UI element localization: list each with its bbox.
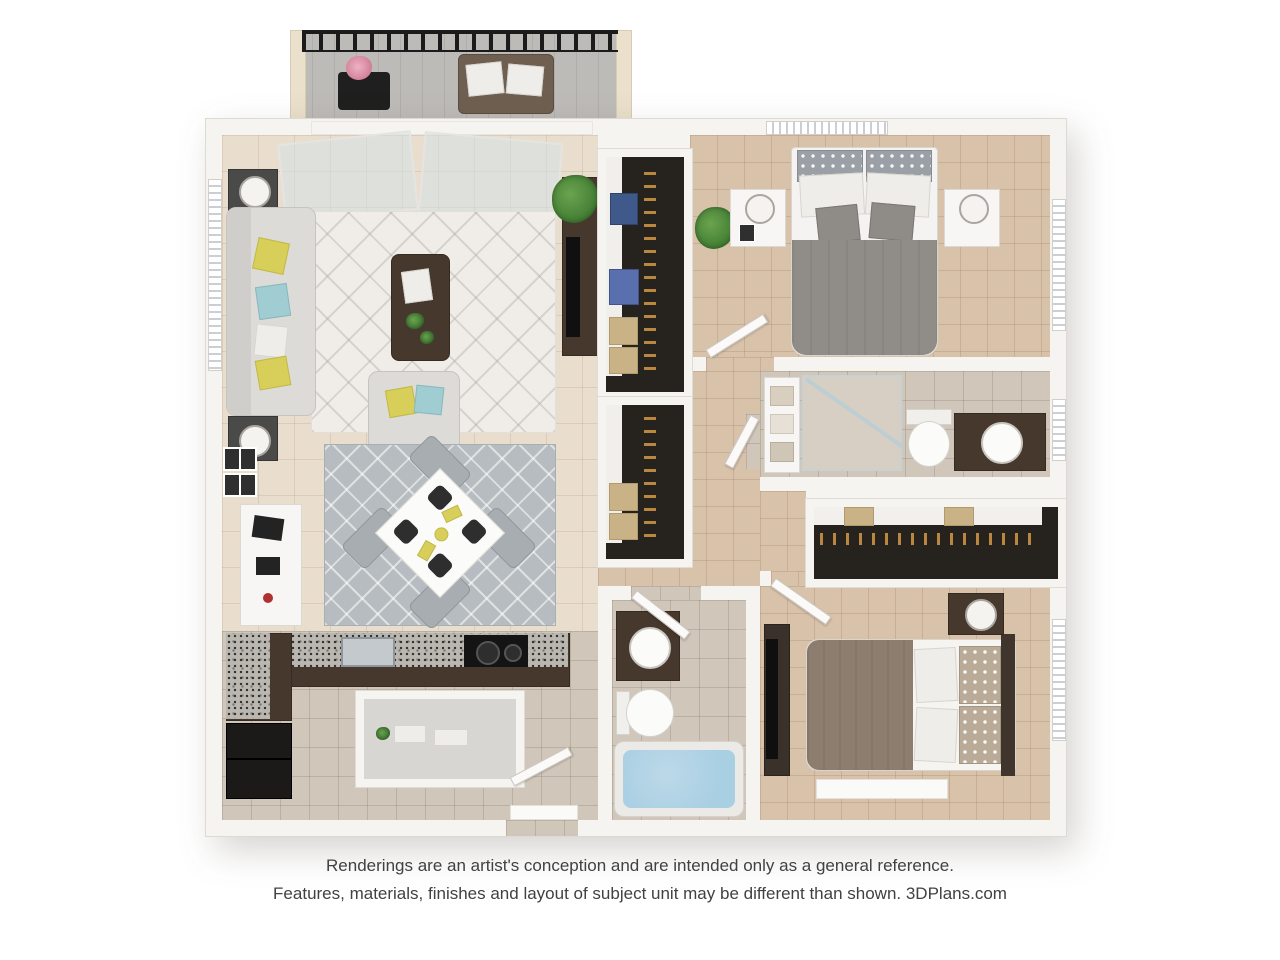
kitchen-countertop-left	[226, 633, 270, 719]
coffee-table-plant	[406, 313, 424, 329]
refrigerator	[226, 723, 292, 799]
towel	[770, 442, 794, 462]
bedroom-2-bed	[806, 639, 1016, 771]
refrigerator-divider	[227, 758, 291, 760]
folded-clothes-blue	[610, 193, 638, 225]
folded-clothes-blue	[609, 269, 639, 305]
bedroom-2-lamp	[965, 599, 997, 631]
wall-frame	[239, 473, 257, 497]
towel	[770, 386, 794, 406]
living-room-window	[208, 179, 222, 371]
closet-box	[609, 347, 638, 374]
toilet-bowl	[626, 689, 674, 737]
bedroom-2-rug	[816, 779, 948, 799]
hallway-floor-nook	[760, 491, 806, 571]
tv-screen	[566, 237, 580, 337]
bedroom-1-nightstand	[944, 189, 1000, 247]
bedroom-2-nightstand	[948, 593, 1004, 635]
bed-duvet	[792, 240, 937, 355]
closet-hanger-rod	[820, 533, 1036, 545]
bed-blanket	[807, 640, 913, 770]
closet-hanger-rod	[644, 165, 656, 370]
stove-burner	[476, 641, 500, 665]
pantry-closet	[356, 691, 524, 787]
sofa-back	[227, 208, 251, 415]
bathtub-water	[623, 750, 735, 808]
living-room-sofa	[226, 207, 316, 416]
sofa-pillow-teal	[255, 283, 291, 320]
balcony-railing	[302, 30, 618, 52]
sideboard-decor-red	[263, 593, 273, 603]
pantry-item	[394, 725, 426, 743]
dining-plate	[392, 517, 420, 545]
bedroom-1-top-window	[766, 121, 888, 135]
armchair-pillow-teal	[414, 385, 445, 416]
disclaimer-line-2: Features, materials, finishes and layout…	[0, 880, 1280, 908]
stove-burner	[504, 644, 522, 662]
accent-pillow-trellis	[959, 646, 1001, 704]
closet-hanger-rod	[644, 411, 656, 537]
dining-napkin	[441, 505, 462, 523]
bedroom-2-window	[1052, 619, 1066, 741]
bedroom-1-side-window	[1052, 199, 1066, 331]
front-door-opening	[506, 820, 578, 836]
bathroom-1-sink	[981, 422, 1023, 464]
bed-pillow	[914, 707, 959, 763]
sideboard	[240, 504, 302, 626]
kitchen-sink	[341, 637, 395, 667]
sofa-pillow-yellow	[255, 355, 292, 390]
bedroom-1-lamp	[745, 194, 775, 224]
balcony-sofa-cushion	[465, 61, 504, 97]
wall-frame	[239, 447, 257, 471]
closet-box	[844, 507, 874, 526]
accent-pillow-trellis	[959, 706, 1001, 764]
floor-lamp	[239, 176, 271, 208]
closet-box	[944, 507, 974, 526]
bathroom-2-sink	[629, 627, 671, 669]
dining-pitcher	[432, 525, 452, 545]
nightstand-frame	[739, 224, 755, 242]
floor-plan-canvas	[205, 30, 1065, 835]
pantry-item	[434, 729, 468, 746]
bathroom-1-vanity	[954, 413, 1046, 471]
balcony-post-right	[616, 30, 632, 120]
sideboard-decor	[256, 557, 280, 575]
coffee-table	[391, 254, 450, 361]
walk-in-closet-2	[598, 397, 692, 567]
toilet-bowl	[908, 421, 950, 467]
linen-closet	[764, 377, 800, 473]
disclaimer-line-1: Renderings are an artist's conception an…	[0, 852, 1280, 880]
disclaimer: Renderings are an artist's conception an…	[0, 852, 1280, 908]
pantry-plant	[376, 727, 390, 740]
bedroom-1-nightstand	[730, 189, 786, 247]
closet-box	[609, 483, 638, 511]
accent-pillow-gray	[869, 202, 916, 242]
bed-headboard	[1001, 634, 1015, 776]
balcony	[290, 30, 630, 118]
sofa-pillow-yellow	[252, 237, 290, 275]
coffee-table-plant	[420, 331, 434, 344]
end-table	[228, 169, 278, 211]
sideboard-decor	[252, 515, 285, 541]
closet-box	[609, 513, 638, 540]
entry-mat	[510, 805, 578, 820]
bed-pillow	[914, 647, 959, 703]
bedroom-1-lamp	[959, 194, 989, 224]
towel	[770, 414, 794, 434]
bedroom-1-door-opening	[706, 357, 774, 371]
closet-box	[609, 317, 638, 345]
dining-plate	[460, 517, 488, 545]
apartment-unit	[205, 118, 1067, 837]
coffee-table-book	[401, 268, 433, 304]
stove-cooktop	[464, 635, 528, 667]
bedroom-2-tv	[766, 639, 778, 759]
accent-pillow-gray	[815, 204, 861, 244]
bedroom-2-closet	[806, 499, 1066, 587]
bathroom-1-window	[1052, 399, 1066, 461]
bedroom-1-bed	[791, 147, 938, 356]
sofa-pillow-white	[253, 323, 288, 358]
armchair-pillow-yellow	[385, 386, 417, 418]
balcony-sofa	[458, 54, 554, 114]
walk-in-closet-1	[598, 149, 692, 400]
bathtub	[614, 741, 744, 817]
balcony-sofa-cushion	[506, 63, 544, 96]
